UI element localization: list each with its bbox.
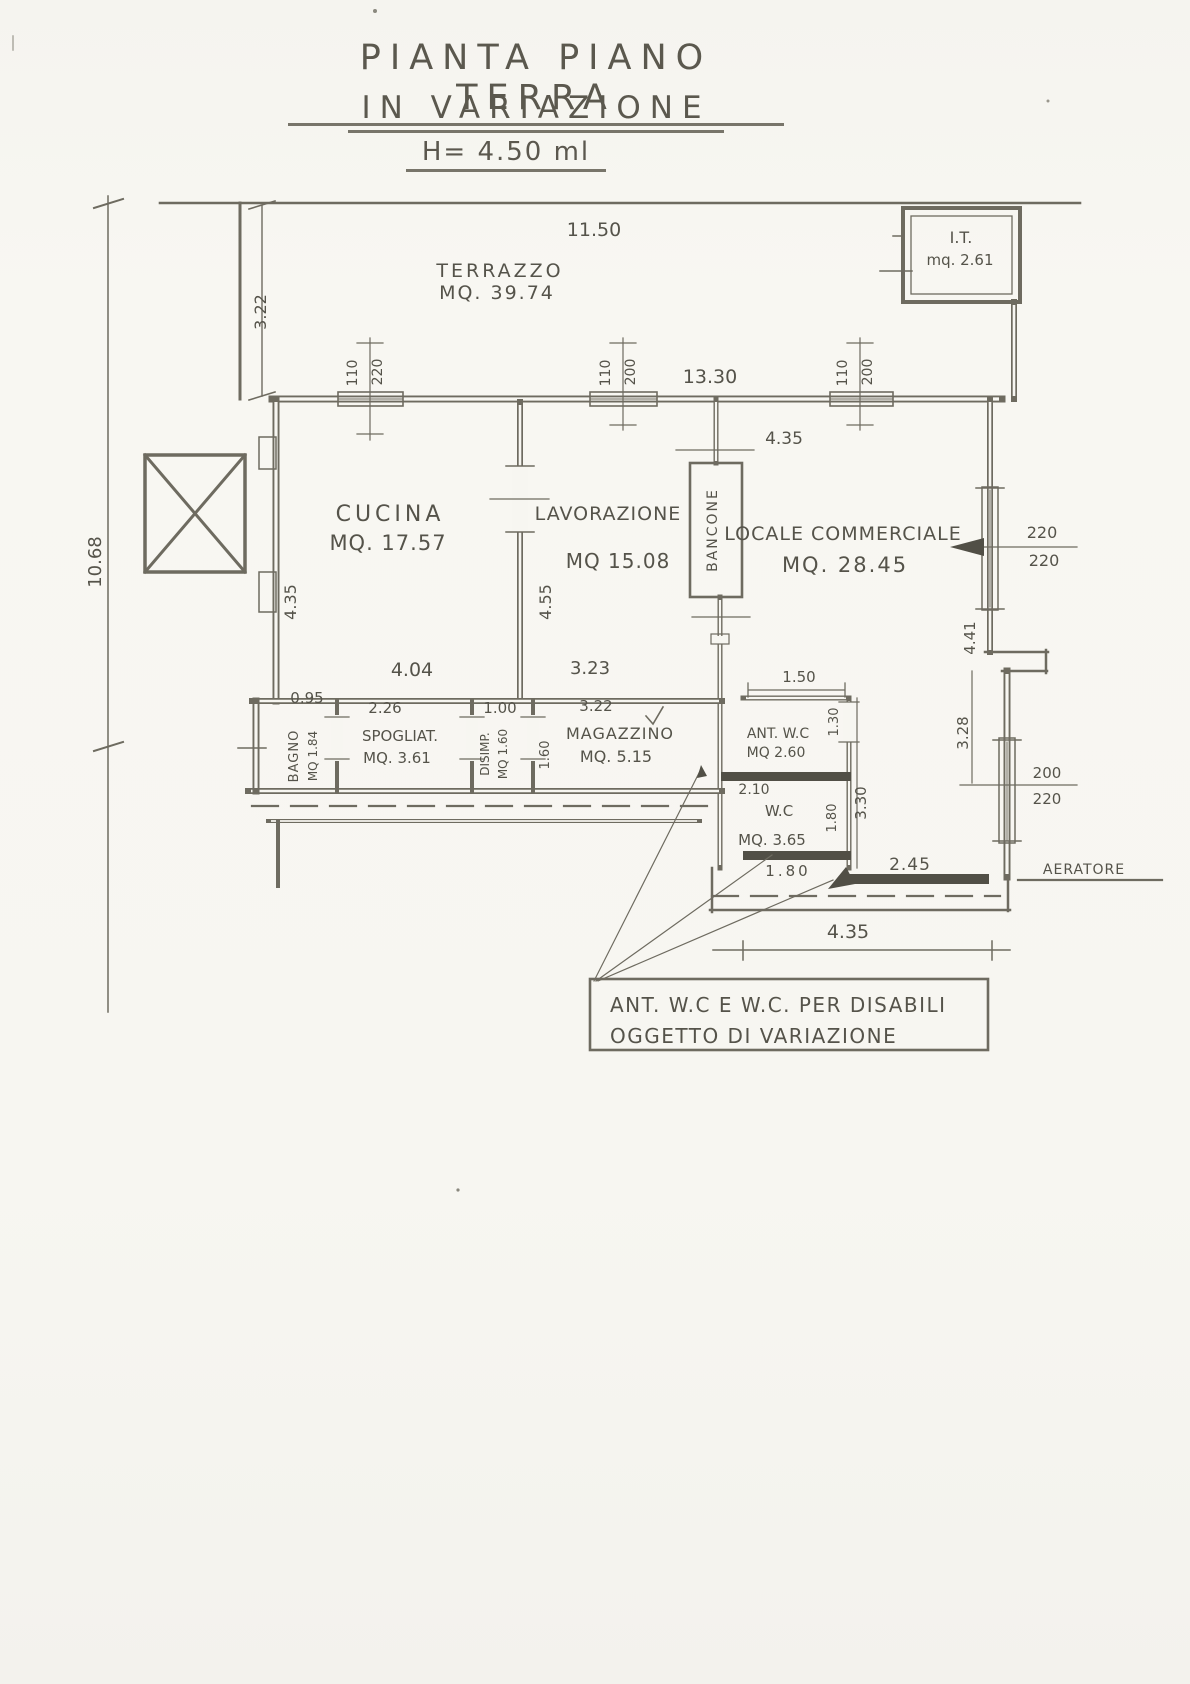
dim-top-width: 11.50 <box>567 219 621 241</box>
site-boundary <box>94 196 1080 1012</box>
dim-wc-side: 1.80 <box>825 804 840 833</box>
ant-wc-area: MQ 2.60 <box>747 745 806 761</box>
dim-spogliatoio-width: 2.26 <box>368 699 401 717</box>
note-line2: OGGETTO DI VARIAZIONE <box>610 1024 897 1048</box>
magazzino-area: MQ. 5.15 <box>580 747 652 766</box>
it-cabin-label: I.T. <box>950 228 973 247</box>
bagno-area: MQ 1.84 <box>306 731 320 781</box>
dim-wc-height: 3.30 <box>852 786 870 819</box>
dim-right-lower-height: 3.28 <box>954 716 972 749</box>
cucina-area: MQ. 17.57 <box>329 531 446 555</box>
building-walls <box>248 302 1162 912</box>
dim-total-height: 10.68 <box>85 536 106 588</box>
dim-window2-w: 110 <box>598 360 614 387</box>
note-line1: ANT. W.C E W.C. PER DISABILI <box>610 993 947 1017</box>
dim-disimpegno-width: 1.00 <box>483 699 516 717</box>
dim-locale-top: 4.35 <box>765 429 803 449</box>
dim-win-right-lower-a: 200 <box>1033 764 1062 782</box>
dim-bagno-width: 0.95 <box>290 689 323 707</box>
dim-window3-w: 110 <box>835 360 851 387</box>
bancone-label: BANCONE <box>705 488 721 572</box>
it-cabin-area: mq. 2.61 <box>926 251 993 269</box>
bagno-label: BAGNO <box>287 730 302 783</box>
dim-wc-bottom: 1.80 <box>765 862 810 880</box>
dim-building-width: 13.30 <box>683 366 737 388</box>
spogliatoio-label: SPOGLIAT. <box>362 727 438 745</box>
dim-cucina-height: 4.35 <box>281 584 300 620</box>
dim-window3-h: 200 <box>860 359 876 386</box>
dim-lavorazione-width: 3.23 <box>570 658 610 679</box>
dim-ant-wc-width: 1.50 <box>782 668 815 686</box>
dim-terrace-depth: 3.22 <box>251 294 270 330</box>
dim-lavorazione-height: 4.55 <box>536 584 555 620</box>
aeratore-label: AERATORE <box>1043 862 1125 878</box>
dim-window1-h: 220 <box>370 359 386 386</box>
windows <box>338 338 1077 843</box>
disimpegno-area: MQ 1.60 <box>496 729 510 779</box>
shaft-x-box <box>145 455 245 572</box>
ant-wc-label: ANT. W.C <box>747 726 810 742</box>
terrazzo-area: MQ. 39.74 <box>439 282 555 304</box>
dim-disimpegno-depth: 1.60 <box>538 741 553 770</box>
dim-locale-bottom: 2.45 <box>889 855 931 875</box>
dim-win-right-upper-a: 220 <box>1027 523 1058 542</box>
dim-magazzino-width: 3.22 <box>579 697 612 715</box>
wc-area: MQ. 3.65 <box>738 831 806 849</box>
magazzino-label: MAGAZZINO <box>566 724 674 743</box>
dim-bottom-width: 4.35 <box>827 921 869 943</box>
dim-win-right-lower-b: 220 <box>1033 790 1062 808</box>
scanned-floorplan-page: { "title": { "line1": "PIANTA PIANO TERR… <box>0 0 1190 1684</box>
spogliatoio-area: MQ. 3.61 <box>363 749 431 767</box>
locale-commerciale-area: MQ. 28.45 <box>782 553 908 577</box>
floorplan-drawing: 11.50 TERRAZZO MQ. 39.74 I.T. mq. 2.61 3… <box>0 0 1190 1684</box>
disimpegno-label: DISIMP. <box>478 732 492 775</box>
dim-ant-wc-door: 1.30 <box>827 708 842 737</box>
cucina-label: CUCINA <box>336 502 445 527</box>
dim-wc-top: 2.10 <box>738 782 769 798</box>
dim-cucina-width: 4.04 <box>391 659 433 681</box>
terrazzo-label: TERRAZZO <box>435 260 563 282</box>
dim-window2-h: 200 <box>623 359 639 386</box>
lavorazione-label: LAVORAZIONE <box>535 503 682 525</box>
wc-label: W.C <box>765 802 793 820</box>
dim-window1-w: 110 <box>345 360 361 387</box>
locale-commerciale-label: LOCALE COMMERCIALE <box>724 523 961 545</box>
lavorazione-area: MQ 15.08 <box>566 549 671 573</box>
dim-win-right-upper-b: 220 <box>1029 551 1060 570</box>
dim-locale-height: 4.41 <box>961 621 979 654</box>
